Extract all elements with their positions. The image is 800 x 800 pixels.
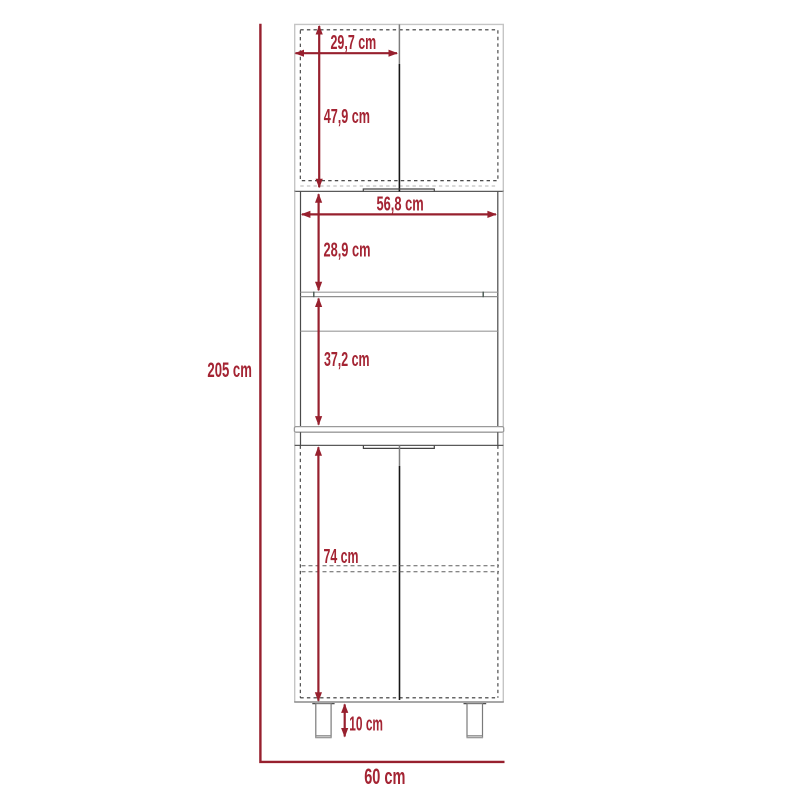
svg-text:28,9 cm: 28,9 cm — [324, 240, 371, 262]
svg-text:37,2 cm: 37,2 cm — [324, 349, 370, 371]
svg-text:56,8 cm: 56,8 cm — [377, 194, 424, 216]
svg-text:205 cm: 205 cm — [207, 359, 252, 382]
svg-text:29,7 cm: 29,7 cm — [331, 32, 377, 54]
svg-text:74 cm: 74 cm — [324, 546, 359, 568]
svg-text:60 cm: 60 cm — [364, 764, 405, 789]
svg-text:47,9 cm: 47,9 cm — [324, 106, 370, 128]
svg-text:10 cm: 10 cm — [349, 714, 383, 736]
